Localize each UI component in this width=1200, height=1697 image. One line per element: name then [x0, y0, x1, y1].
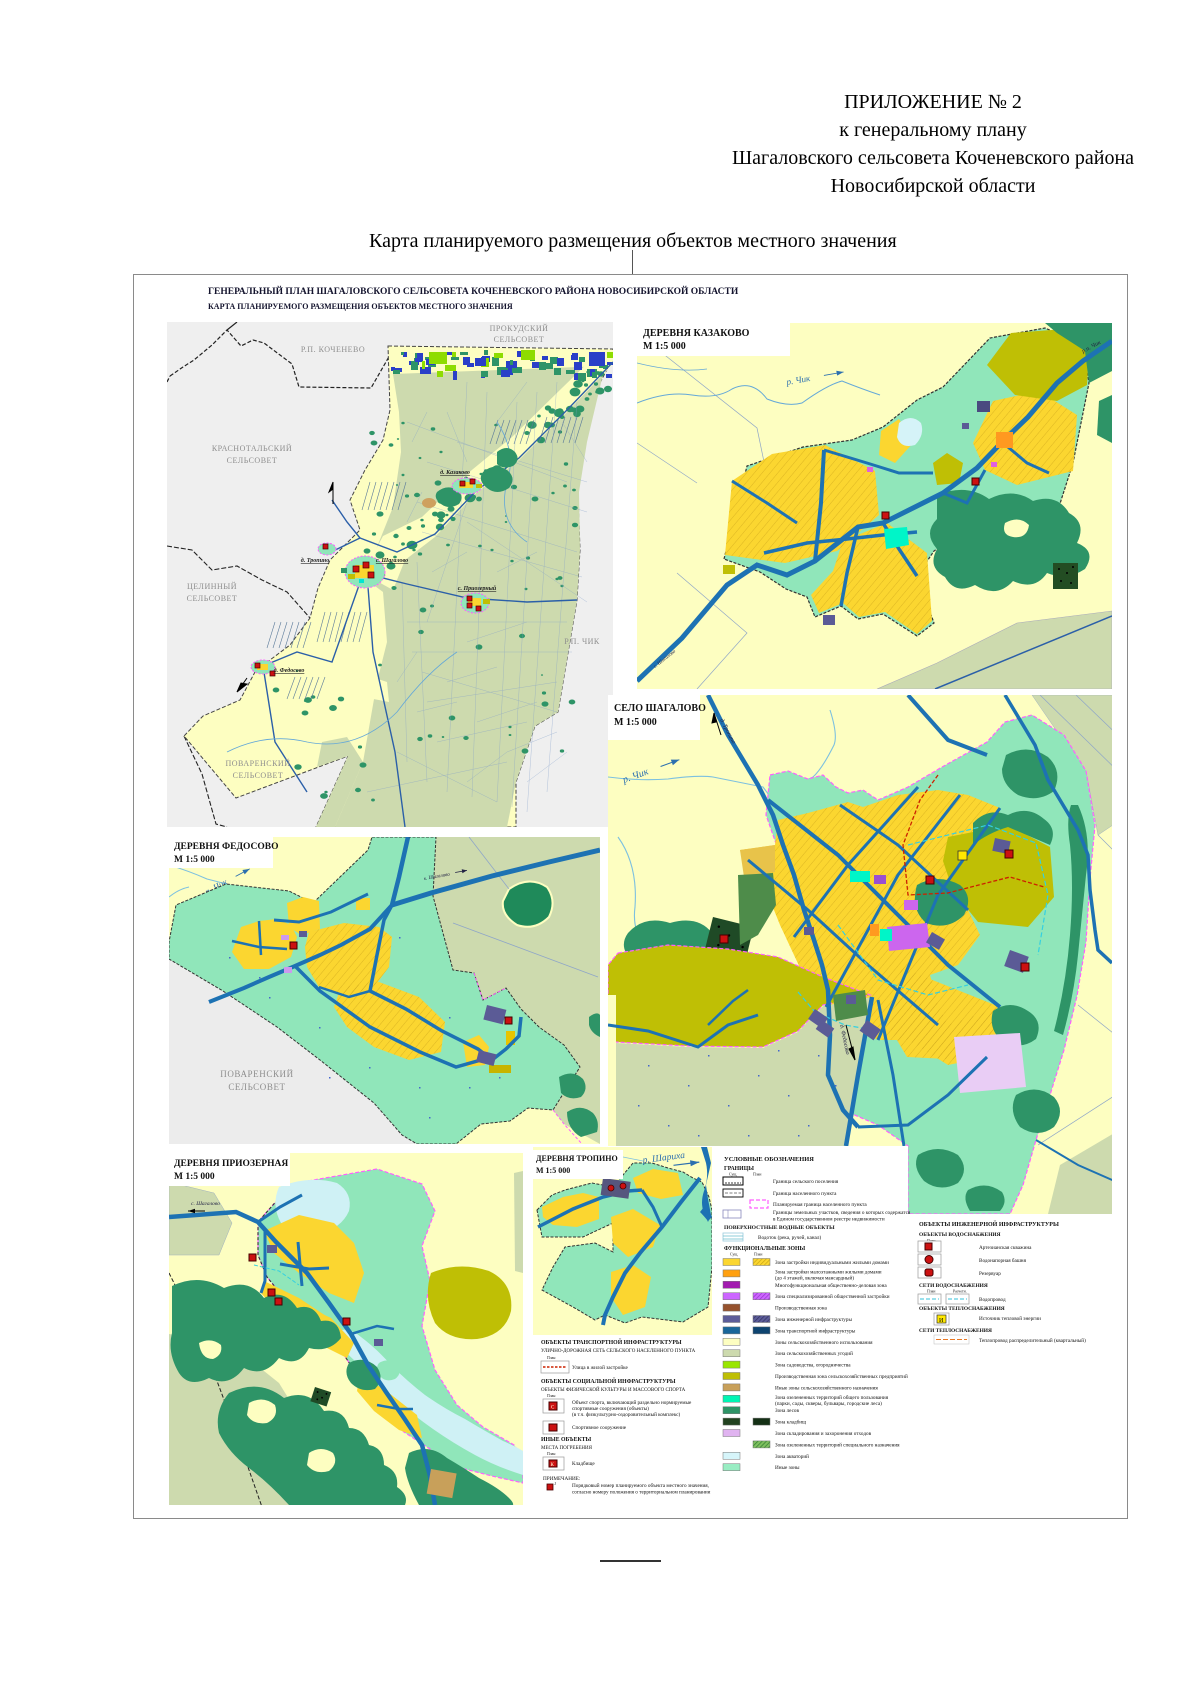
svg-text:План: План: [547, 1452, 555, 1456]
svg-text:Зона сельскохозяйственных угод: Зона сельскохозяйственных угодий: [775, 1350, 853, 1357]
svg-text:Иные зоны сельскохозяйственног: Иные зоны сельскохозяйственного назначен…: [775, 1384, 878, 1391]
svg-text:ОБЪЕКТЫ ФИЗИЧЕСКОЙ КУЛЬТУРЫ И: ОБЪЕКТЫ ФИЗИЧЕСКОЙ КУЛЬТУРЫ И МАССОВОГО …: [541, 1387, 686, 1393]
svg-text:(парки, сады, скверы, бульвары: (парки, сады, скверы, бульвары, городски…: [775, 1400, 882, 1407]
svg-text:Граница населенного пункта: Граница населенного пункта: [773, 1191, 837, 1197]
svg-text:План: План: [547, 1356, 555, 1360]
svg-text:Зона складирования и захоронен: Зона складирования и захоронения отходов: [775, 1431, 872, 1437]
svg-text:Водоток (река, ручей, канал): Водоток (река, ручей, канал): [758, 1234, 821, 1241]
svg-text:с. Приозерный: с. Приозерный: [458, 585, 497, 592]
svg-text:Водонапорная башня: Водонапорная башня: [979, 1257, 1027, 1264]
svg-text:Резервуар: Резервуар: [979, 1271, 1001, 1277]
svg-text:согласно номеру положения о те: согласно номеру положения о территориаль…: [572, 1490, 711, 1496]
svg-text:Зона транспортной инфраструкту: Зона транспортной инфраструктуры: [775, 1327, 856, 1334]
svg-text:ГРАНИЦЫ: ГРАНИЦЫ: [724, 1166, 754, 1172]
svg-text:УСЛОВНЫЕ ОБОЗНАЧЕНИЯ: УСЛОВНЫЕ ОБОЗНАЧЕНИЯ: [724, 1156, 814, 1163]
svg-text:ПОВАРЕНСКИЙ: ПОВАРЕНСКИЙ: [220, 1069, 294, 1079]
svg-text:И: И: [939, 1318, 944, 1324]
svg-text:КРАСНОТАЛЬСКИЙ: КРАСНОТАЛЬСКИЙ: [212, 444, 292, 453]
svg-text:Водопровод: Водопровод: [979, 1297, 1006, 1303]
svg-text:СЕЛО ШАГАЛОВО: СЕЛО ШАГАЛОВО: [614, 703, 706, 714]
svg-text:Улица в жилой застройке: Улица в жилой застройке: [572, 1364, 629, 1371]
svg-text:(в т.ч. физкультурно-оздоровит: (в т.ч. физкультурно-оздоровительный ком…: [572, 1411, 681, 1418]
svg-text:д. Тропино: д. Тропино: [301, 557, 330, 564]
svg-text:СЕТИ ВОДОСНАБЖЕНИЯ: СЕТИ ВОДОСНАБЖЕНИЯ: [919, 1283, 988, 1289]
svg-text:Объект спорта, включающий разд: Объект спорта, включающий раздельно норм…: [572, 1399, 692, 1406]
svg-text:Порядковый номер планируемого: Порядковый номер планируемого объекта ме…: [572, 1482, 709, 1489]
svg-text:ОБЪЕКТЫ ВОДОСНАБЖЕНИЯ: ОБЪЕКТЫ ВОДОСНАБЖЕНИЯ: [919, 1232, 1001, 1238]
svg-text:М 1:5 000: М 1:5 000: [174, 1172, 215, 1182]
svg-text:СЕЛЬСОВЕТ: СЕЛЬСОВЕТ: [187, 594, 238, 603]
svg-text:Зона застройки индивидуальными: Зона застройки индивидуальными жилыми до…: [775, 1259, 889, 1266]
svg-text:СЕЛЬСОВЕТ: СЕЛЬСОВЕТ: [228, 1082, 285, 1092]
svg-text:М 1:5 000: М 1:5 000: [174, 855, 215, 865]
svg-text:1: 1: [554, 1481, 556, 1486]
svg-text:Артезианская скважина: Артезианская скважина: [979, 1245, 1032, 1251]
svg-text:Сущ.: Сущ.: [729, 1173, 737, 1177]
svg-text:ОБЪЕКТЫ СОЦИАЛЬНОЙ ИНФРАСТРУКТ: ОБЪЕКТЫ СОЦИАЛЬНОЙ ИНФРАСТРУКТУРЫ: [541, 1377, 676, 1385]
svg-text:ПРОКУДСКИЙ: ПРОКУДСКИЙ: [490, 324, 549, 333]
svg-text:Зона застройки малоэтажными жи: Зона застройки малоэтажными жилыми домам…: [775, 1268, 882, 1275]
svg-text:Зоны сельскохозяйственного исп: Зоны сельскохозяйственного использования: [775, 1339, 873, 1346]
svg-text:ОБЪЕКТЫ ТРАНСПОРТНОЙ ИНФРАСТРУ: ОБЪЕКТЫ ТРАНСПОРТНОЙ ИНФРАСТРУКТУРЫ: [541, 1338, 682, 1346]
svg-text:Сущ.: Сущ.: [730, 1253, 738, 1257]
svg-text:Зона инженерной инфраструктуры: Зона инженерной инфраструктуры: [775, 1316, 852, 1323]
svg-text:ФУНКЦИОНАЛЬНЫЕ ЗОНЫ: ФУНКЦИОНАЛЬНЫЕ ЗОНЫ: [724, 1246, 805, 1252]
svg-text:в Едином государственном реест: в Едином государственном реестре недвижи…: [773, 1217, 885, 1223]
svg-text:Зона озелененных территорий сп: Зона озелененных территорий специального…: [775, 1441, 900, 1448]
svg-text:ДЕРЕВНЯ ПРИОЗЕРНАЯ: ДЕРЕВНЯ ПРИОЗЕРНАЯ: [174, 1159, 288, 1169]
svg-text:М 1:5 000: М 1:5 000: [614, 717, 657, 728]
svg-text:Иные зоны: Иные зоны: [775, 1465, 800, 1471]
svg-text:ДЕРЕВНЯ КАЗАКОВО: ДЕРЕВНЯ КАЗАКОВО: [643, 328, 750, 339]
svg-text:СЕТИ ТЕПЛОСНАБЖЕНИЯ: СЕТИ ТЕПЛОСНАБЖЕНИЯ: [919, 1328, 992, 1334]
svg-text:с. Шагалово: с. Шагалово: [191, 1201, 220, 1207]
svg-text:д. Федосово: д. Федосово: [274, 667, 305, 674]
svg-text:Границы земельных участков, св: Границы земельных участков, сведения о к…: [773, 1210, 911, 1216]
svg-text:Зона акваторий: Зона акваторий: [775, 1453, 809, 1460]
svg-text:М 1:5 000: М 1:5 000: [643, 341, 686, 352]
svg-text:УЛИЧНО-ДОРОЖНАЯ СЕТЬ СЕЛЬСКОГО: УЛИЧНО-ДОРОЖНАЯ СЕТЬ СЕЛЬСКОГО НАСЕЛЕННО…: [541, 1349, 696, 1354]
svg-text:ПОВЕРХНОСТНЫЕ ВОДНЫЕ ОБЪЕКТЫ: ПОВЕРХНОСТНЫЕ ВОДНЫЕ ОБЪЕКТЫ: [724, 1225, 835, 1231]
svg-text:План: План: [754, 1253, 762, 1257]
svg-text:План: План: [753, 1173, 761, 1177]
svg-text:спортивные сооружения (объекты: спортивные сооружения (объекты): [572, 1405, 649, 1412]
svg-text:ДЕРЕВНЯ ФЕДОСОВО: ДЕРЕВНЯ ФЕДОСОВО: [174, 842, 279, 852]
svg-text:Зона лесов: Зона лесов: [775, 1408, 799, 1414]
svg-text:ПОВАРЕНСКИЙ: ПОВАРЕНСКИЙ: [225, 759, 290, 768]
svg-text:ЦЕЛИННЫЙ: ЦЕЛИННЫЙ: [187, 582, 237, 591]
svg-text:Расчетн.: Расчетн.: [953, 1290, 967, 1294]
svg-text:Источник тепловой энергии: Источник тепловой энергии: [979, 1315, 1041, 1322]
svg-text:(до 4 этажей, включая мансардн: (до 4 этажей, включая мансардный): [775, 1274, 854, 1281]
svg-text:Зона специализированной общест: Зона специализированной общественной зас…: [775, 1293, 890, 1300]
svg-text:МЕСТА ПОГРЕБЕНИЯ: МЕСТА ПОГРЕБЕНИЯ: [541, 1446, 593, 1451]
svg-text:Зона кладбищ: Зона кладбищ: [775, 1419, 806, 1426]
svg-text:СЕЛЬСОВЕТ: СЕЛЬСОВЕТ: [227, 456, 278, 465]
svg-text:Планируемая граница населенног: Планируемая граница населенного пункта: [773, 1202, 867, 1208]
svg-text:Р.П. ЧИК: Р.П. ЧИК: [564, 637, 600, 646]
svg-text:Теплопровод распределительный: Теплопровод распределительный (квартальн…: [979, 1337, 1086, 1344]
svg-text:Р.П. КОЧЕНЕВО: Р.П. КОЧЕНЕВО: [301, 345, 365, 354]
svg-text:Производственная зона сельскох: Производственная зона сельскохозяйственн…: [775, 1373, 908, 1380]
svg-text:ИНЫЕ ОБЪЕКТЫ: ИНЫЕ ОБЪЕКТЫ: [541, 1437, 592, 1443]
svg-text:ОБЪЕКТЫ ИНЖЕНЕРНОЙ ИНФРАСТРУКТ: ОБЪЕКТЫ ИНЖЕНЕРНОЙ ИНФРАСТРУКТУРЫ: [919, 1220, 1059, 1228]
svg-text:Граница сельского поселения: Граница сельского поселения: [773, 1179, 839, 1185]
svg-text:с. Шагалово: с. Шагалово: [376, 558, 408, 564]
svg-text:Зона озелененных территорий об: Зона озелененных территорий общего польз…: [775, 1394, 889, 1401]
svg-text:ПРИМЕЧАНИЕ:: ПРИМЕЧАНИЕ:: [543, 1476, 581, 1482]
svg-text:ОБЪЕКТЫ ТЕПЛОСНАБЖЕНИЯ: ОБЪЕКТЫ ТЕПЛОСНАБЖЕНИЯ: [919, 1306, 1005, 1312]
svg-text:Зона садоводства, огородничест: Зона садоводства, огородничества: [775, 1363, 851, 1369]
svg-text:СЕЛЬСОВЕТ: СЕЛЬСОВЕТ: [233, 771, 284, 780]
svg-text:Производственная зона: Производственная зона: [775, 1306, 827, 1312]
svg-text:Спортивное сооружение: Спортивное сооружение: [572, 1425, 627, 1431]
svg-text:План: План: [927, 1290, 935, 1294]
svg-text:Кладбище: Кладбище: [572, 1460, 595, 1467]
svg-text:Многофункциональная общественн: Многофункциональная общественно-деловая …: [775, 1282, 887, 1289]
svg-text:СЕЛЬСОВЕТ: СЕЛЬСОВЕТ: [494, 335, 545, 344]
svg-text:д. Казаково: д. Казаково: [440, 469, 470, 476]
svg-text:План: План: [547, 1394, 555, 1398]
